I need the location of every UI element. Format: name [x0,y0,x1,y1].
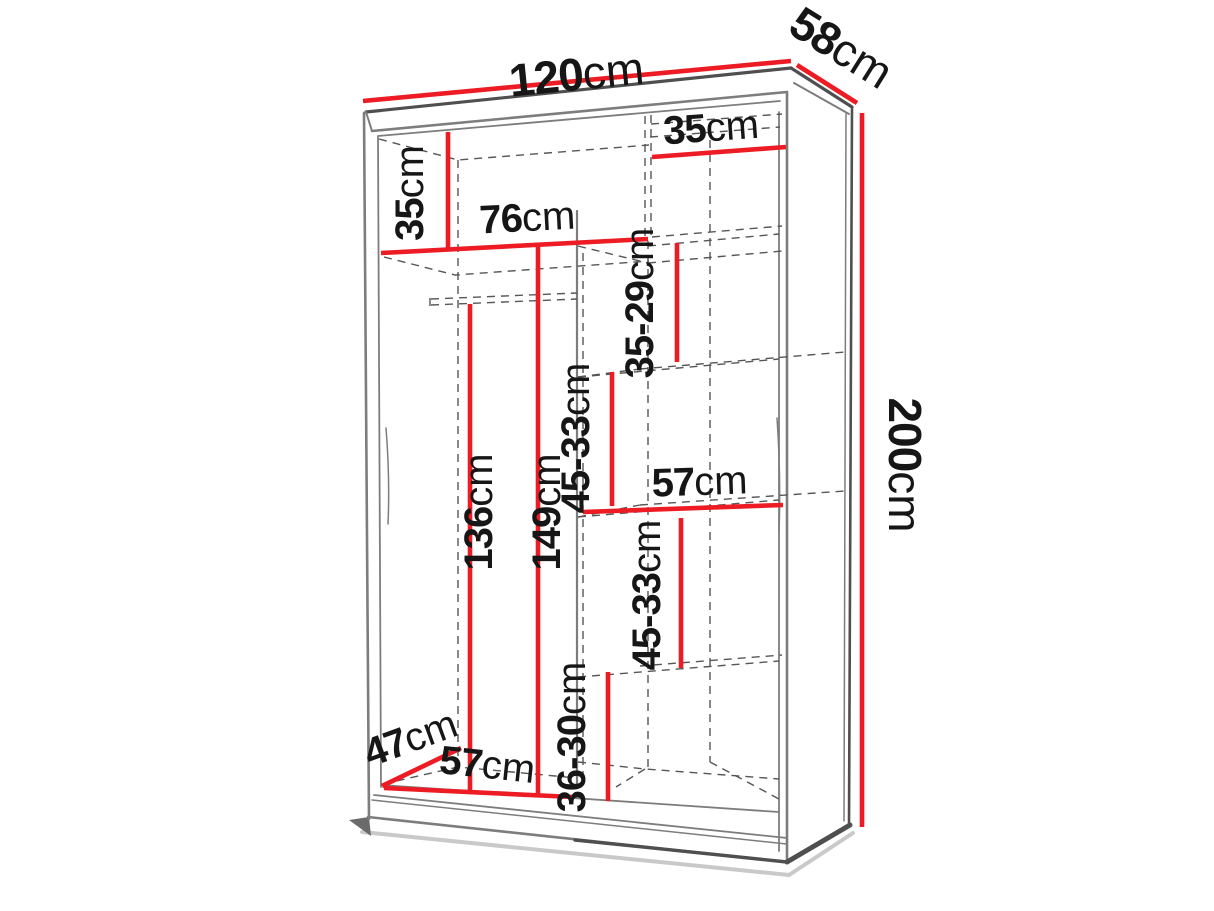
dim-label-right-shelf-width: 57cm [651,458,748,505]
dim-line-left-bottom-width [384,788,573,797]
dim-label-overall-width: 120cm [507,42,647,107]
dim-label-left-height: 149cm [525,453,569,570]
dim-label-top-left-height: 35cm [388,145,432,241]
dim-line-right-shelf-width [583,505,783,512]
dim-label-hanging-height: 136cm [457,453,501,570]
dim-label-right-gap-1: 35-29cm [618,228,662,379]
dim-label-overall-height: 200cm [879,397,931,532]
bottom-front-edge-dark [575,840,787,862]
diagram-canvas: 120cm 58cm 200cm 35cm 76cm 35cm 35-29cm … [0,0,1214,911]
shadow-left-corner [349,817,371,836]
floor-corner-diagonal [616,769,645,787]
floor-shadow [349,817,853,875]
left-door-reflection [386,428,389,524]
shelf2-under-back-edge [648,251,782,263]
dim-label-left-bottom-width: 57cm [437,738,537,792]
hanging-rod-top [431,293,577,299]
dim-label-overall-depth: 58cm [781,0,902,99]
dim-label-top-right-width: 35cm [662,103,761,154]
hanging-rod-bottom [431,299,577,305]
back-right-outer-edge [849,107,852,826]
back-right-inner-edge [844,114,846,821]
left-outer-edge [364,113,369,819]
floor-depth-diagonal [710,762,779,799]
dim-label-left-shelf-width: 76cm [478,194,576,243]
hidden-edges-right-section [578,114,845,799]
left-shelf-back-edge [384,257,649,275]
top-left-cap [366,112,372,131]
left-inner-edge [378,137,381,787]
dim-label-right-gap-3: 45-33cm [625,520,669,671]
dim-label-right-bottom-gap: 36-30cm [550,662,594,813]
shelf3-back-edge [640,352,845,369]
wardrobe-dimension-diagram: 120cm 58cm 200cm 35cm 76cm 35cm 35-29cm … [0,0,1214,911]
